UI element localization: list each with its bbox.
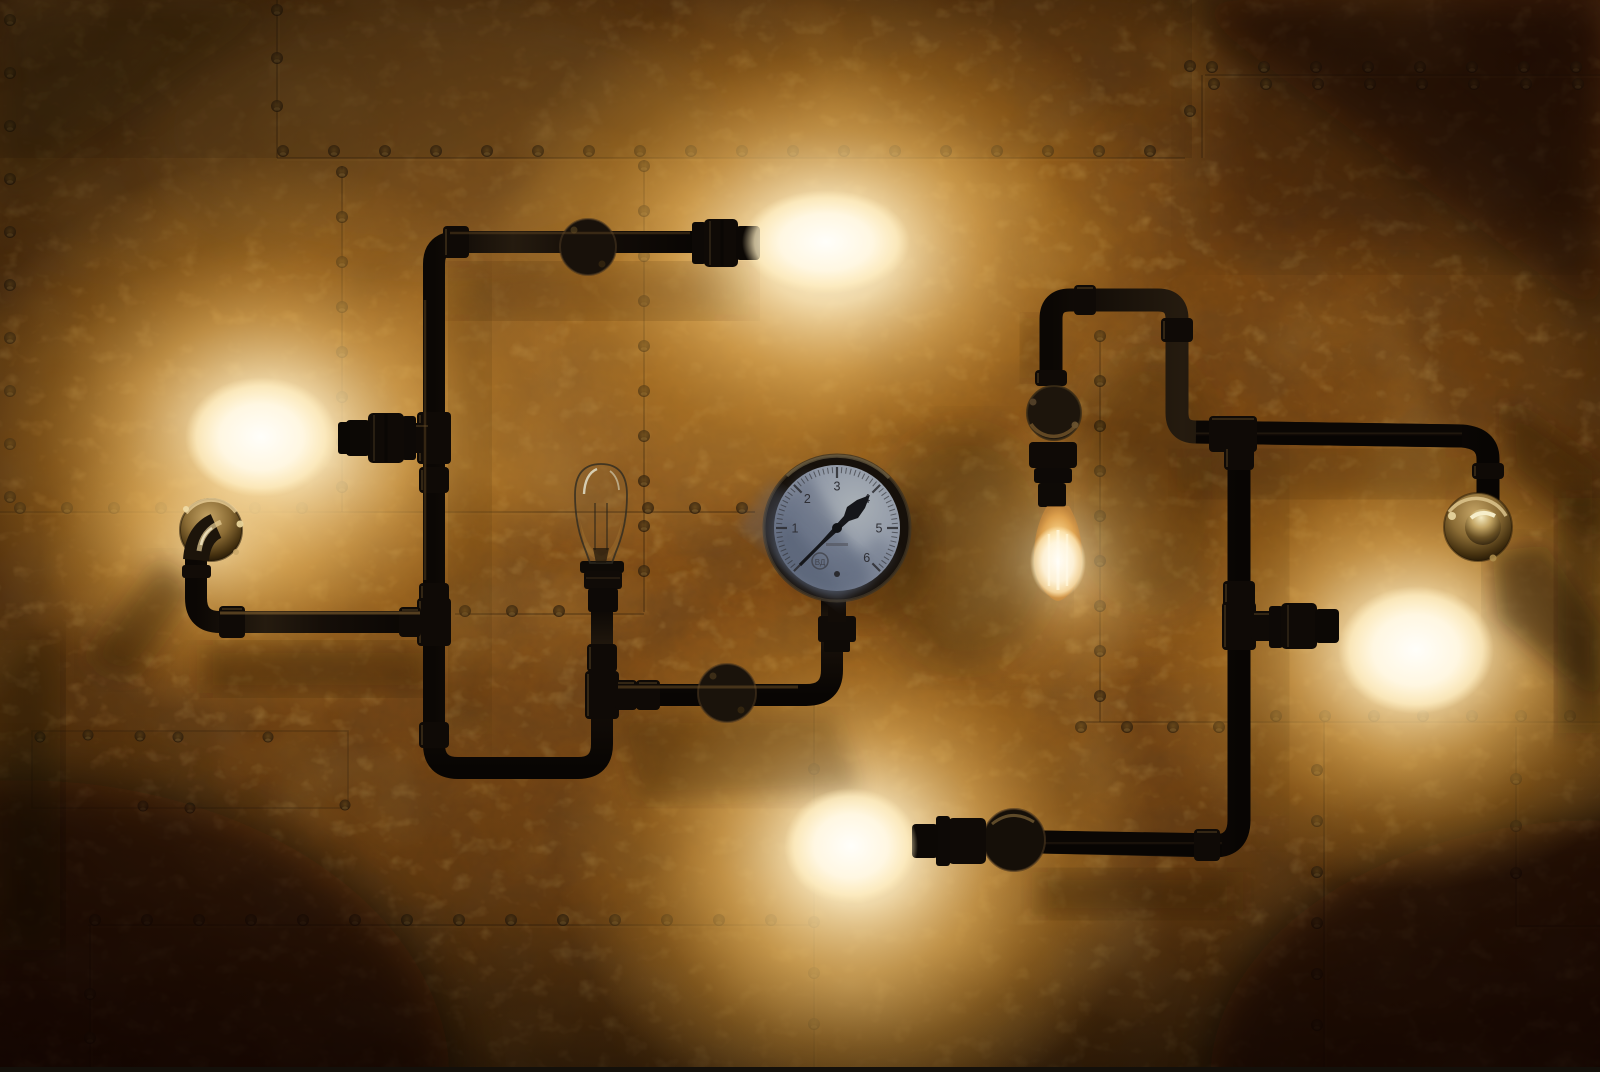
- svg-text:1: 1: [792, 522, 799, 536]
- svg-text:5: 5: [876, 522, 883, 536]
- svg-text:2: 2: [804, 492, 811, 506]
- svg-text:6: 6: [863, 551, 870, 565]
- svg-text:3: 3: [834, 480, 841, 494]
- svg-text:ВД: ВД: [815, 558, 826, 567]
